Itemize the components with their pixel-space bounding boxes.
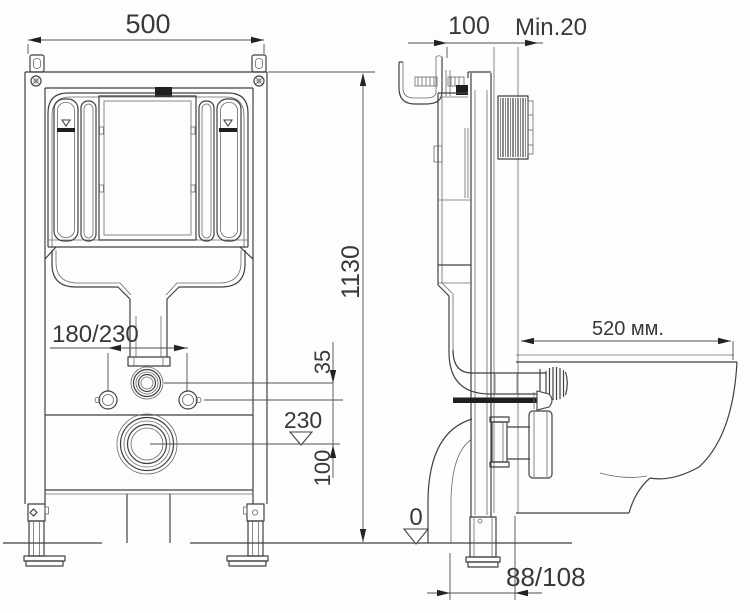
fixing-spacing-label: 180/230 (52, 321, 139, 348)
fixing-bolt-left (95, 391, 117, 409)
lower-tank-and-flush-pipe (52, 250, 245, 366)
floor-datum: 0 (404, 504, 428, 544)
dim-connection-levels: 35 100 230 (284, 342, 336, 486)
min-wall-label: Min.20 (515, 14, 587, 41)
outlet-connector (490, 411, 552, 478)
front-view: 500 (24, 9, 375, 566)
mounting-tabs (30, 55, 266, 86)
access-window (99, 96, 196, 240)
side-view: 100 Min.20 (399, 12, 737, 600)
water-level-mark-right (219, 120, 237, 132)
frame-rail-side (466, 72, 500, 567)
frame-outline (25, 72, 267, 504)
level-datum-triangle (290, 432, 312, 445)
dim-depth-and-wall: 100 Min.20 (408, 12, 587, 58)
cistern-compartments (54, 96, 241, 241)
frame-width-label: 500 (125, 9, 170, 39)
installation-frame-diagram: 500 (0, 0, 750, 613)
adjustable-legs (24, 504, 268, 566)
dim-bowl-length: 520 мм. (521, 318, 733, 360)
dim-frame-width: 500 (28, 9, 264, 54)
cistern-profile (434, 93, 471, 352)
fixing-bolt-right (179, 391, 201, 409)
flush-bend-pipe (449, 350, 567, 400)
outlet-distance-label: 88/108 (506, 562, 586, 592)
wall-sleeve (498, 96, 533, 159)
water-supply-connection (131, 367, 163, 399)
technical-drawing-page: 500 (0, 0, 750, 613)
corner-screw-left (31, 76, 41, 86)
inlet-offset-label: 35 (310, 350, 335, 374)
drain-pipe-front (127, 494, 170, 543)
corner-screw-right (254, 76, 264, 86)
frame-depth-label: 100 (448, 12, 490, 40)
outlet-drop-label: 100 (310, 450, 335, 487)
frame-height-label: 1130 (337, 245, 365, 299)
water-level-mark-left (57, 120, 75, 132)
bowl-length-label: 520 мм. (592, 318, 664, 340)
outlet-level-label: 230 (284, 407, 322, 433)
drain-elbow (428, 419, 472, 543)
floor-level-label: 0 (409, 504, 422, 531)
